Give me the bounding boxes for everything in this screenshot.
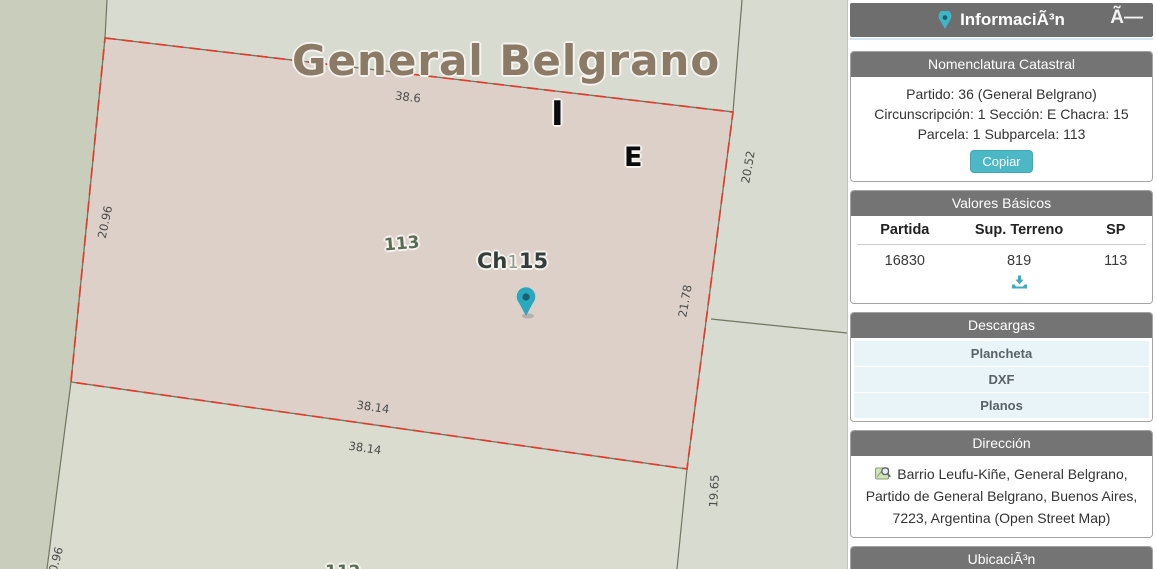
location-pin-icon xyxy=(938,11,952,30)
map-search-icon xyxy=(875,466,891,481)
close-icon[interactable]: Ã— xyxy=(1110,7,1143,29)
copy-button[interactable]: Copiar xyxy=(970,150,1032,173)
sidebar-header-underline xyxy=(850,38,1153,40)
download-icon[interactable] xyxy=(1011,275,1028,290)
panel-ubicacion-header: UbicaciÃ³n xyxy=(851,547,1152,569)
download-item-planos[interactable]: Planos xyxy=(854,393,1149,418)
panel-direccion: Dirección Barrio Leufu-Kiñe, General Bel… xyxy=(850,430,1153,538)
column-sup-terreno: Sup. Terreno xyxy=(955,222,1084,238)
cadastral-map[interactable]: General Belgrano I E 113 Ch115 112 38.6 … xyxy=(0,0,847,569)
panel-direccion-header: Dirección xyxy=(851,431,1152,456)
panel-valores-basicos: Valores Básicos Partida Sup. Terreno SP … xyxy=(850,190,1153,304)
nomenclatura-text: Partido: 36 (General Belgrano) Circunscr… xyxy=(851,77,1152,146)
value-sup-terreno: 819 xyxy=(955,253,1084,269)
value-sp: 113 xyxy=(1084,253,1148,269)
panel-valores-header: Valores Básicos xyxy=(851,191,1152,216)
panel-ubicacion: UbicaciÃ³n Escala: 211.59 xyxy=(850,546,1153,569)
map-zone-label: I xyxy=(551,94,564,134)
map-section-label: E xyxy=(624,142,642,173)
map-chacra-label: Ch115 xyxy=(477,249,548,273)
info-sidebar: InformaciÃ³n Ã— Nomenclatura Catastral P… xyxy=(847,0,1157,569)
sidebar-header: InformaciÃ³n Ã— xyxy=(850,3,1153,37)
panel-descargas: Descargas Plancheta DXF Planos xyxy=(850,312,1153,422)
panel-nomenclatura-catastral: Nomenclatura Catastral Partido: 36 (Gene… xyxy=(850,51,1153,182)
chacra-prefix: Ch xyxy=(477,249,507,273)
panel-descargas-header: Descargas xyxy=(851,313,1152,338)
direccion-text: Barrio Leufu-Kiñe, General Belgrano, Par… xyxy=(866,466,1138,526)
column-partida: Partida xyxy=(855,222,955,238)
map-city-title: General Belgrano xyxy=(292,36,720,85)
valores-table-divider xyxy=(857,244,1146,245)
app-window: General Belgrano I E 113 Ch115 112 38.6 … xyxy=(0,0,1157,569)
sidebar-title: InformaciÃ³n xyxy=(960,10,1065,30)
map-subparcel-label: 113 xyxy=(383,232,420,255)
download-item-plancheta[interactable]: Plancheta xyxy=(854,341,1149,366)
valores-table-header-row: Partida Sup. Terreno SP xyxy=(851,216,1152,242)
value-partida: 16830 xyxy=(855,253,955,269)
measure-bottom-right-edge: 19.65 xyxy=(706,469,722,514)
chacra-overlap-digit: 1 xyxy=(507,252,518,273)
map-neighbor-parcel-label-partial: 112 xyxy=(325,562,361,569)
chacra-number: 15 xyxy=(519,249,548,273)
valores-table-value-row: 16830 819 113 xyxy=(851,247,1152,273)
download-item-dxf[interactable]: DXF xyxy=(854,367,1149,392)
panel-nomenclatura-header: Nomenclatura Catastral xyxy=(851,52,1152,77)
column-sp: SP xyxy=(1084,222,1148,238)
